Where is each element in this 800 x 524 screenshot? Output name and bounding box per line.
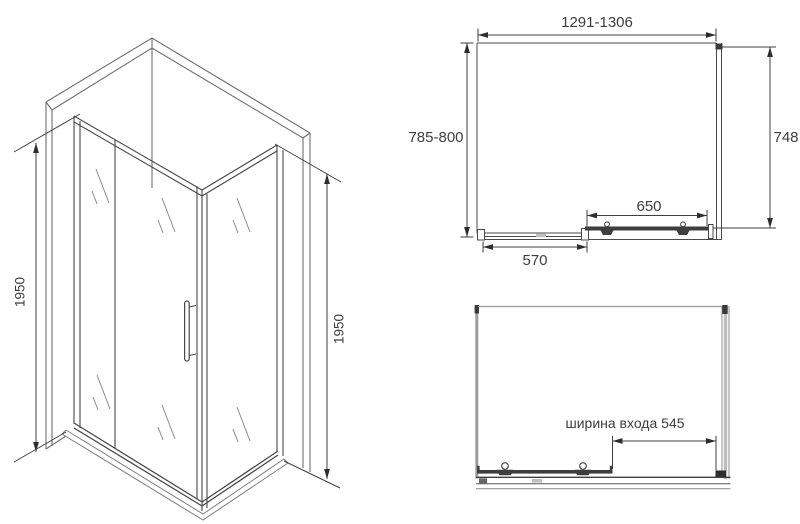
plan-bottom-track [478,222,714,240]
shower-tray [62,430,288,520]
width-label: 1291-1306 [561,14,633,31]
dimension-entrance: ширина входа 545 [565,415,716,470]
open-outline [475,305,729,479]
door-width-label: 650 [636,198,661,215]
plan-view-open: ширина входа 545 [475,305,731,489]
side-panel-label: 748 [773,129,798,146]
brand-mark [536,234,546,237]
wall-profile-cap [716,44,723,50]
shower-enclosure-drawing: 1950 1950 [0,0,800,524]
drawing-canvas: 1950 1950 [0,0,800,524]
left-height-label: 1950 [13,277,28,307]
open-bottom-track [476,463,731,489]
dimension-width: 1291-1306 [478,14,716,42]
brand-mark [532,479,542,483]
depth-label: 785-800 [408,129,463,146]
right-wall-profile [724,306,727,479]
isometric-view: 1950 1950 [13,38,347,520]
iso-dimension-right-height: 1950 [275,144,347,488]
entrance-width-label: ширина входа 545 [565,415,684,431]
track-end-cap [479,478,487,483]
right-height-label: 1950 [332,314,347,344]
glass-shine-marks [92,169,250,442]
fixed-panel-label: 570 [522,252,547,269]
plan-view-closed: 1291-1306 785-800 748 650 570 [408,14,798,269]
door-roller [497,463,514,475]
background-walls [46,38,310,472]
dimension-depth: 785-800 [408,43,473,237]
enclosure-frame [62,116,288,520]
door-handle [185,301,196,361]
sliding-door-panel [585,227,710,231]
door-roller [575,463,592,475]
plan-outline [477,43,723,240]
dimension-fixed-panel: 570 [483,242,587,270]
left-wall-profile [475,306,478,479]
wall-profile-cap [722,305,727,314]
dimension-side-panel: 748 [713,47,799,228]
track-end-cap [478,230,485,241]
door-end-bracket [709,225,714,239]
